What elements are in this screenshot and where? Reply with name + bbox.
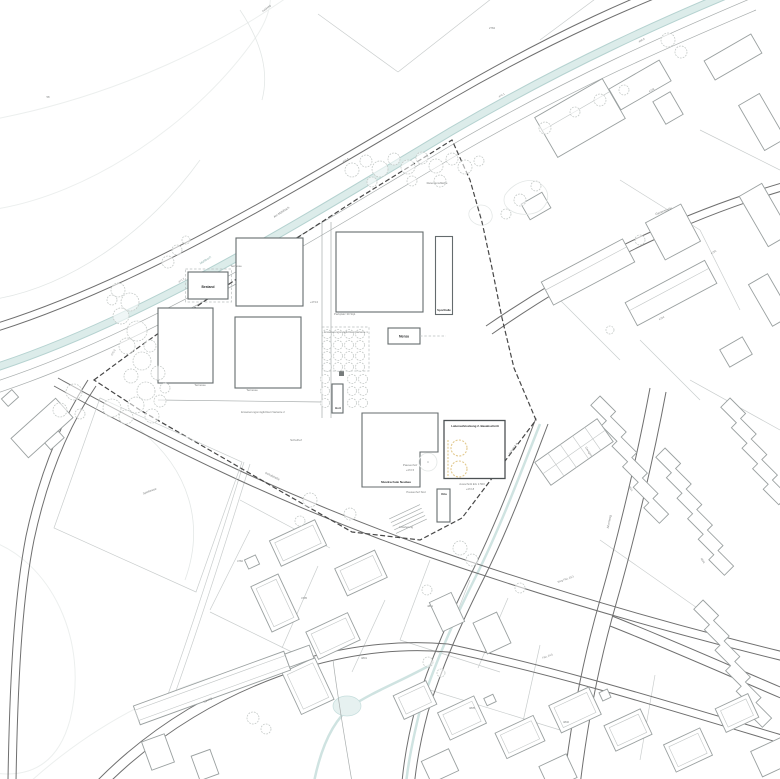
map-label: 4835 — [469, 706, 475, 710]
tree-icon — [539, 122, 551, 134]
tree-icon — [474, 156, 484, 166]
tree-icon — [323, 363, 332, 372]
map-label: Am Mühlbach — [273, 205, 291, 219]
house-footprint — [664, 728, 713, 772]
house-footprint — [751, 737, 780, 777]
tree-icon — [182, 236, 190, 244]
house-footprint — [473, 612, 511, 654]
tree-icon — [359, 399, 368, 408]
tree-icon — [356, 341, 365, 350]
tree-icon — [446, 153, 458, 165]
tree-icon — [570, 107, 580, 117]
map-label: Parkplatz 30 Stpl. — [334, 312, 356, 316]
map-label: 4782 — [237, 559, 243, 563]
tree-icon — [119, 410, 133, 424]
site-plan: BestandSporthalleMensaHortKitaMusikschul… — [0, 0, 780, 779]
tree-icon — [137, 382, 155, 400]
tree-icon — [128, 397, 144, 413]
house-footprint — [438, 696, 487, 740]
house-footprint — [306, 613, 360, 660]
tree-icon — [501, 209, 511, 219]
building-footprint — [748, 274, 780, 327]
sporthalle-building — [436, 237, 453, 315]
map-label: +472.5 — [406, 468, 415, 472]
tree-icon — [345, 363, 354, 372]
building-footprint — [11, 398, 79, 464]
house-footprint — [269, 520, 326, 567]
tree-icon — [295, 516, 305, 526]
school-building — [236, 238, 303, 306]
wetland — [333, 696, 361, 716]
map-label: Kita — [441, 492, 447, 496]
map-label: Retentionsfläche — [427, 181, 448, 185]
tree-icon — [154, 395, 166, 407]
tree-icon — [113, 308, 129, 324]
map-label: Ahornweg — [606, 514, 613, 528]
terrace-row — [701, 398, 780, 505]
tree-icon — [458, 160, 472, 174]
map-label: Flst. 24/1 — [542, 652, 554, 660]
tree-icon — [619, 85, 629, 95]
tree-icon — [594, 94, 606, 106]
tree-icon — [345, 163, 359, 177]
map-label: Mühlbach — [199, 255, 212, 266]
map-label: 470.8 — [342, 156, 350, 163]
map-label: Weg Flst. 25/1 — [557, 574, 575, 584]
map-label: Erweiterungsmöglichkeit Variante 2 — [241, 410, 285, 414]
building-footprint — [625, 260, 717, 325]
tree-icon — [531, 181, 541, 191]
map-label: Bestand — [201, 285, 214, 289]
map-label: +472.8 — [466, 487, 475, 491]
house-footprint — [421, 749, 458, 779]
tree-icon — [151, 366, 165, 380]
tree-icon — [675, 46, 687, 58]
map-label: Pausenhof — [403, 463, 418, 467]
tree-icon — [360, 155, 372, 167]
tree-icon — [323, 352, 332, 361]
school-building — [158, 308, 213, 383]
tree-icon — [133, 352, 151, 370]
tree-icon — [53, 403, 67, 417]
tree-icon — [145, 409, 159, 423]
tree-icon — [453, 541, 467, 555]
tree-icon — [303, 493, 317, 507]
site-plan-drawing: BestandSporthalleMensaHortKitaMusikschul… — [0, 0, 780, 779]
map-label: Schnitt A-A — [508, 442, 519, 456]
tree-icon — [356, 363, 365, 372]
shed-footprint — [484, 694, 496, 705]
sports-field — [54, 398, 242, 592]
building-footprint — [720, 337, 753, 367]
tree-icon — [144, 340, 156, 352]
tree-icon — [119, 338, 135, 354]
tree-icon — [466, 554, 478, 566]
tree-icon — [162, 256, 174, 268]
tree-icon — [121, 293, 139, 311]
map-label: Sporthalle — [437, 308, 451, 312]
tree-icon — [515, 583, 525, 593]
map-label: Terrasse — [194, 383, 206, 387]
map-label: Anlieferung — [399, 525, 414, 529]
tree-icon — [606, 326, 614, 334]
map-label: 4795 — [301, 596, 307, 600]
house-footprint — [495, 715, 545, 758]
tree-icon — [103, 399, 121, 417]
tree-icon — [359, 375, 368, 384]
tree-icon — [635, 235, 645, 245]
school-building — [336, 232, 423, 312]
tree-icon — [66, 384, 82, 400]
building-footprint — [541, 239, 634, 305]
house-footprint — [604, 709, 652, 751]
house-footprint — [539, 754, 577, 779]
map-label: 58 — [47, 95, 50, 99]
map-label: Terrasse — [246, 388, 258, 392]
map-label: 2784 — [489, 26, 495, 30]
tree-icon — [323, 341, 332, 350]
map-label: Schulhof — [290, 438, 302, 442]
stream-corridor — [0, 0, 756, 779]
tree-icon — [247, 712, 259, 724]
tree-icon — [107, 295, 117, 305]
tree-icon — [334, 363, 343, 372]
map-label: Hort — [335, 406, 341, 410]
shed-footprint — [599, 689, 611, 701]
tree-icon — [348, 399, 357, 408]
tree-icon — [127, 321, 147, 341]
tree-icon — [356, 352, 365, 361]
map-label: Ausschnitt EG 1:500 — [459, 482, 485, 486]
tree-icon — [321, 387, 330, 396]
tree-icon — [321, 399, 330, 408]
tree-icon — [661, 33, 675, 47]
building-footprint — [739, 93, 780, 150]
map-label: Spielwiese — [142, 487, 157, 496]
house-footprint — [251, 574, 299, 632]
building-footprint — [704, 34, 762, 80]
house-footprint — [549, 687, 602, 733]
tree-icon — [345, 341, 354, 350]
school-building — [235, 317, 301, 388]
trafo-building — [339, 371, 344, 376]
map-label: Pausenhof Süd — [406, 490, 426, 494]
tree-icon — [348, 387, 357, 396]
outdoor-steps — [389, 505, 427, 534]
building-footprint — [521, 192, 551, 220]
map-label: 4833 — [700, 557, 707, 565]
map-label: Erweiterungsmöglichkeit Variante 1 — [324, 330, 368, 334]
tree-icon — [334, 341, 343, 350]
map-label: +473.0 — [310, 300, 319, 304]
map-label: Laboraufstockung 2. Bauabschnitt — [451, 424, 499, 428]
tree-icon — [367, 177, 377, 187]
tree-icon — [124, 369, 138, 383]
building-footprint — [739, 183, 780, 246]
tree-icon — [334, 352, 343, 361]
shed-footprint — [244, 555, 259, 569]
tree-icon — [160, 383, 170, 393]
map-label: Musikschule Neubau — [381, 480, 411, 484]
tree-icon — [344, 508, 356, 520]
tree-icon — [388, 153, 400, 165]
shed-footprint — [1, 390, 18, 407]
tree-icon — [422, 585, 432, 595]
map-label: 4755 — [710, 249, 718, 256]
map-label: 4801 — [361, 656, 367, 660]
building-footprint — [653, 92, 683, 125]
tree-icon — [172, 245, 182, 255]
tree-icon — [401, 160, 415, 174]
tree-icon — [514, 194, 526, 206]
stream-branch — [314, 664, 432, 779]
tree-icon — [416, 152, 428, 164]
house-footprint — [335, 550, 388, 596]
tree-icon — [348, 375, 357, 384]
tree-icon — [359, 387, 368, 396]
tree-icon — [423, 657, 433, 667]
map-label: 4840 — [563, 720, 569, 724]
house-footprint — [142, 734, 175, 770]
tree-icon — [75, 409, 85, 419]
house-footprint — [191, 749, 219, 779]
tree-icon — [372, 161, 388, 177]
house-footprint — [393, 681, 437, 720]
map-label: Mensa — [399, 335, 409, 339]
map-label: 472.3 — [110, 348, 117, 356]
map-label: 4764 — [658, 315, 666, 322]
map-label: Terrasse — [230, 264, 242, 268]
tree-icon — [345, 352, 354, 361]
tree-icon — [429, 159, 443, 173]
tree-icon — [407, 176, 417, 186]
tree-icon — [321, 375, 330, 384]
map-label: 4811 — [427, 604, 433, 608]
labor-building — [444, 421, 505, 479]
tree-icon — [437, 669, 445, 677]
map-label: Schulstraße — [264, 471, 280, 482]
tree-icon — [261, 724, 271, 734]
musikschule-building — [362, 413, 438, 487]
